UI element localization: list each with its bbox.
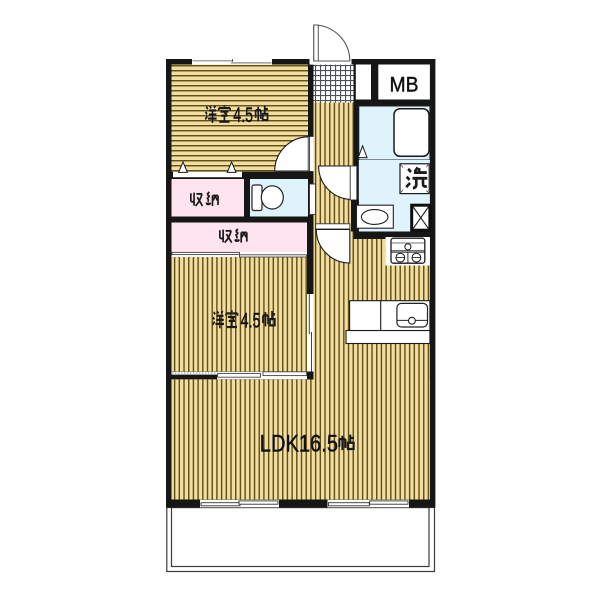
svg-text:LDK16.5: LDK16.5 bbox=[260, 431, 338, 458]
svg-text:4.5: 4.5 bbox=[241, 308, 261, 332]
svg-text:4.5: 4.5 bbox=[233, 103, 253, 127]
svg-text:MB: MB bbox=[390, 73, 419, 97]
